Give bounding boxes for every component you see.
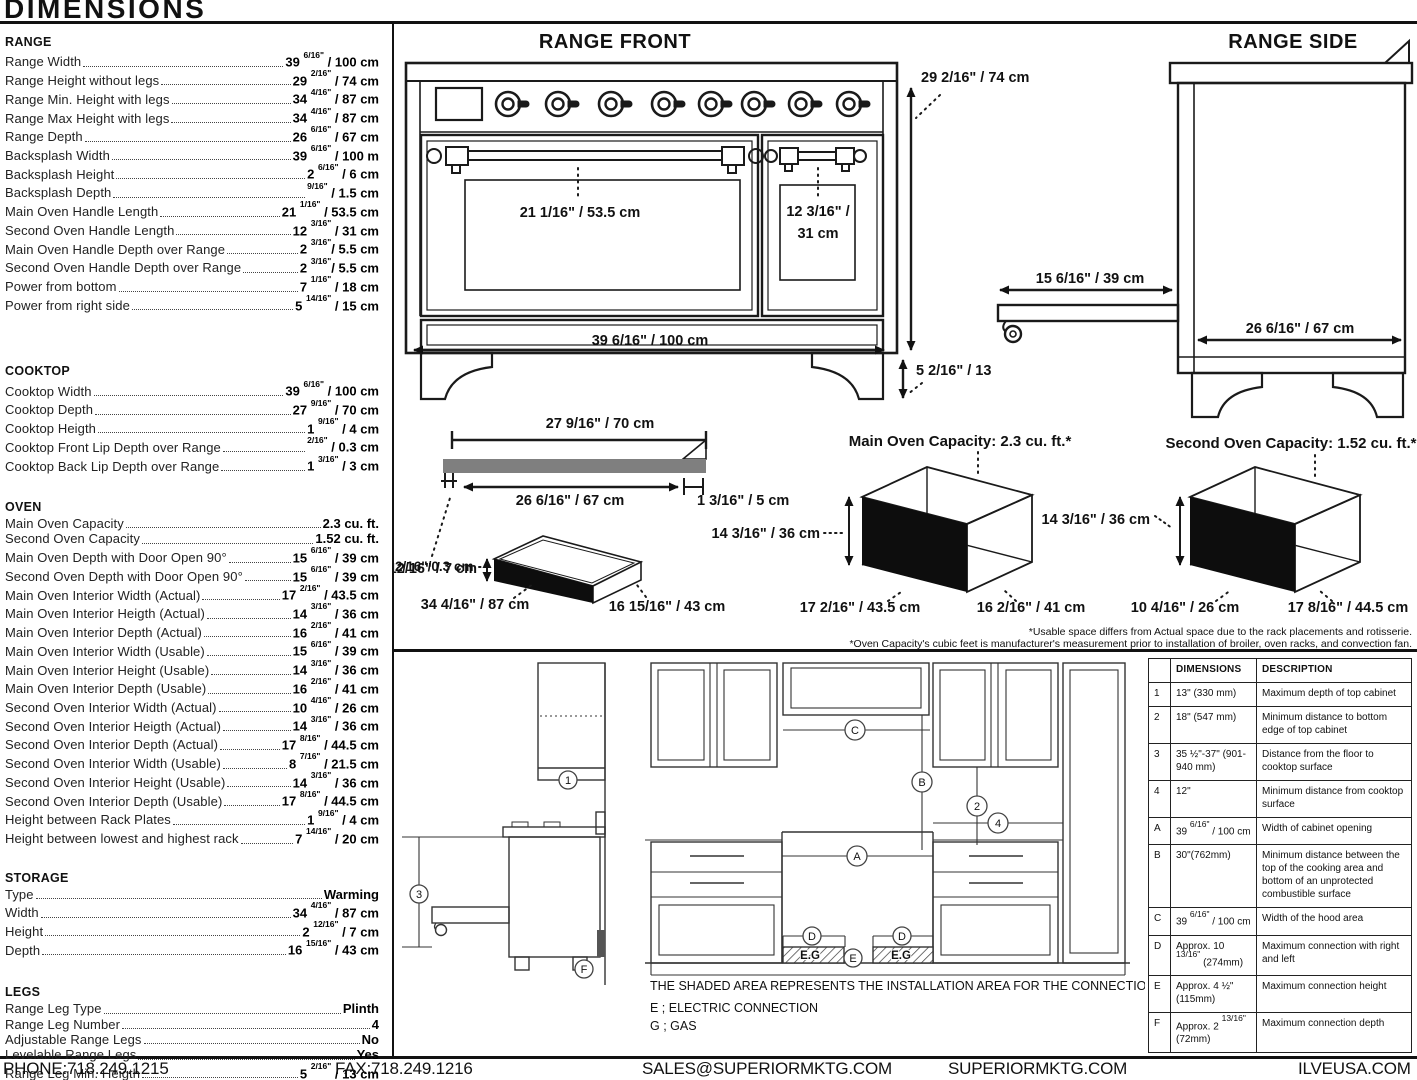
- table-cell-key: E: [1149, 975, 1171, 1012]
- side-right-leg: [1333, 373, 1403, 417]
- svg-text:D: D: [898, 931, 906, 943]
- cooktop-total-width-label: 27 9/16" / 70 cm: [546, 416, 654, 432]
- dotted-leader: [171, 122, 290, 123]
- spec-row: Range Min. Height with legs 34 4/16" / 8…: [5, 88, 379, 107]
- main-oven-height-label: 14 3/16" / 36 cm: [712, 526, 820, 542]
- storage-depth-label: 16 15/16" / 43 cm: [609, 599, 726, 615]
- footer-email: SALES@SUPERIORMKTG.COM: [642, 1059, 892, 1079]
- table-cell-dimension: Approx. 4 ½" (115mm): [1171, 975, 1257, 1012]
- dotted-leader: [202, 599, 279, 600]
- dotted-leader: [243, 272, 298, 273]
- storage-width-label: 34 4/16" / 87 cm: [421, 597, 529, 613]
- main-oven-width-label: 17 2/16" / 43.5 cm: [800, 600, 921, 616]
- dotted-leader: [160, 216, 279, 217]
- spec-row: Height between lowest and highest rack 7…: [5, 828, 379, 847]
- table-row: 1 13" (330 mm) Maximum depth of top cabi…: [1149, 683, 1412, 707]
- spec-value: 34 4/16" / 87 cm: [293, 107, 379, 126]
- second-oven-depth-label: 17 8/16" / 44.5 cm: [1288, 600, 1409, 616]
- marker-3: 3: [410, 885, 428, 903]
- dotted-leader: [176, 234, 290, 235]
- dotted-leader: [126, 527, 321, 528]
- spec-row: Power from right side 5 14/16" / 15 cm: [5, 295, 379, 314]
- spec-value: 39 6/16" / 100 cm: [285, 380, 379, 399]
- spec-label: Second Oven Interior Depth (Usable): [5, 794, 222, 809]
- spec-value: 12 3/16" / 31 cm: [293, 220, 379, 239]
- svg-text:F: F: [581, 964, 588, 976]
- marker-C: C: [845, 720, 865, 740]
- main-handle-length-label: 21 1/16" / 53.5 cm: [520, 205, 641, 221]
- spec-label: Backsplash Width: [5, 148, 110, 163]
- spec-row: Second Oven Interior Depth (Actual) 17 8…: [5, 734, 379, 753]
- section-title: LEGS: [5, 985, 379, 999]
- dotted-leader: [113, 197, 305, 198]
- dotted-leader: [211, 674, 290, 675]
- spec-label: Range Max Height with legs: [5, 111, 169, 126]
- dotted-leader: [112, 159, 291, 160]
- spec-value: 2.3 cu. ft.: [323, 516, 379, 531]
- spec-value: 8 7/16" / 21.5 cm: [289, 753, 379, 772]
- table-row: B 30"(762mm) Minimum distance between th…: [1149, 845, 1412, 908]
- spec-value: 4: [372, 1017, 379, 1032]
- spec-row: Second Oven Interior Heigth (Actual) 14 …: [5, 715, 379, 734]
- spec-row: Range Depth 26 6/16" / 67 cm: [5, 126, 379, 145]
- spec-label: Range Leg Number: [5, 1017, 120, 1032]
- spec-section-range: RANGE Range Width 39 6/16" / 100 cm Rang…: [5, 35, 379, 313]
- spec-label: Backsplash Height: [5, 167, 114, 182]
- spec-row: Main Oven Interior Depth (Usable) 16 2/1…: [5, 678, 379, 697]
- second-oven-height-label: 14 3/16" / 36 cm: [1042, 512, 1150, 528]
- spec-value: 5 14/16" / 15 cm: [295, 295, 379, 314]
- spec-label: Width: [5, 905, 39, 920]
- spec-row: Cooktop Width 39 6/16" / 100 cm: [5, 380, 379, 399]
- table-cell-key: D: [1149, 935, 1171, 975]
- spec-label: Main Oven Interior Depth (Usable): [5, 681, 206, 696]
- dotted-leader: [98, 432, 305, 433]
- table-cell-key: 2: [1149, 707, 1171, 744]
- spec-value: 27 9/16" / 70 cm: [293, 399, 379, 418]
- table-row: A 39 6/16" / 100 cm Width of cabinet ope…: [1149, 818, 1412, 845]
- dotted-leader: [245, 580, 291, 581]
- table-cell-dimension: Approx. 2 13/16" (72mm): [1171, 1012, 1257, 1052]
- spec-value: 7 14/16" / 20 cm: [295, 828, 379, 847]
- dotted-leader: [95, 414, 291, 415]
- spec-label: Depth: [5, 943, 40, 958]
- dotted-leader: [42, 954, 286, 955]
- spec-row: Main Oven Depth with Door Open 90° 15 6/…: [5, 547, 379, 566]
- dotted-leader: [104, 1013, 341, 1014]
- spec-label: Main Oven Handle Length: [5, 204, 158, 219]
- range-depth-label: 26 6/16" / 67 cm: [1246, 321, 1354, 337]
- spec-row: Depth 16 15/16" / 43 cm: [5, 939, 379, 958]
- dotted-leader: [132, 309, 293, 310]
- open-door-shelf: [998, 305, 1178, 321]
- spec-label: Height: [5, 924, 43, 939]
- table-cell-key: F: [1149, 1012, 1171, 1052]
- spec-label: Cooktop Width: [5, 384, 92, 399]
- footer-site: SUPERIORMKTG.COM: [948, 1059, 1127, 1079]
- spec-value: Plinth: [343, 1001, 379, 1016]
- svg-text:E: E: [849, 953, 856, 965]
- spec-section-cooktop: COOKTOP Cooktop Width 39 6/16" / 100 cm …: [5, 364, 379, 474]
- install-note-gas: G ; GAS: [650, 1019, 697, 1033]
- dotted-leader: [138, 1059, 354, 1060]
- table-row: E Approx. 4 ½" (115mm) Maximum connectio…: [1149, 975, 1412, 1012]
- svg-text:2: 2: [974, 801, 980, 813]
- main-oven-depth-label: 16 2/16" / 41 cm: [977, 600, 1085, 616]
- dotted-leader: [173, 824, 305, 825]
- section-title: RANGE: [5, 35, 379, 49]
- table-cell-dimension: 39 6/16" / 100 cm: [1171, 908, 1257, 935]
- section-title: STORAGE: [5, 871, 379, 885]
- main-oven-capacity-title: Main Oven Capacity: 2.3 cu. ft.*: [849, 433, 1072, 450]
- spec-label: Range Leg Type: [5, 1001, 102, 1016]
- spec-row: Power from bottom 7 1/16" / 18 cm: [5, 276, 379, 295]
- table-cell-dimension: 12": [1171, 781, 1257, 818]
- marker-1: 1: [559, 771, 577, 789]
- spec-label: Adjustable Range Legs: [5, 1032, 142, 1047]
- install-side-view: [402, 663, 605, 985]
- marker-A: A: [847, 846, 867, 866]
- table-header-key: [1149, 659, 1171, 683]
- spec-label: Range Height without legs: [5, 73, 159, 88]
- dotted-leader: [223, 730, 291, 731]
- spec-value: 2 12/16" / 7 cm: [302, 921, 379, 940]
- leg-height-label: 5 2/16" / 13: [916, 363, 991, 379]
- dotted-leader: [207, 618, 291, 619]
- spec-row: Cooktop Back Lip Depth over Range 1 3/16…: [5, 455, 379, 474]
- spec-label: Main Oven Interior Width (Actual): [5, 588, 200, 603]
- dotted-leader: [227, 786, 290, 787]
- installation-table: DIMENSIONS DESCRIPTION 1 13" (330 mm) Ma…: [1148, 658, 1412, 1053]
- spec-label: Main Oven Interior Depth (Actual): [5, 625, 202, 640]
- table-cell-description: Minimum distance from cooktop surface: [1257, 781, 1412, 818]
- spec-value: 1 3/16" / 3 cm: [307, 455, 379, 474]
- spec-value: 39 6/16" / 100 m: [293, 145, 379, 164]
- table-cell-dimension: 39 6/16" / 100 cm: [1171, 818, 1257, 845]
- svg-text:D: D: [808, 931, 816, 943]
- spec-label: Cooktop Back Lip Depth over Range: [5, 459, 219, 474]
- spec-row: Second Oven Interior Height (Usable) 14 …: [5, 772, 379, 791]
- spec-column: RANGE Range Width 39 6/16" / 100 cm Rang…: [0, 24, 392, 1080]
- dotted-leader: [142, 543, 313, 544]
- spec-row: Height 2 12/16" / 7 cm: [5, 921, 379, 940]
- section-title: COOKTOP: [5, 364, 379, 378]
- marker-D-right: D: [893, 927, 911, 945]
- spec-row: Width 34 4/16" / 87 cm: [5, 902, 379, 921]
- table-row: 4 12" Minimum distance from cooktop surf…: [1149, 781, 1412, 818]
- spec-row: Main Oven Interior Heigth (Actual) 14 3/…: [5, 603, 379, 622]
- spec-label: Second Oven Depth with Door Open 90°: [5, 569, 243, 584]
- dotted-leader: [224, 805, 279, 806]
- spec-value: 34 4/16" / 87 cm: [293, 88, 379, 107]
- spec-value: 16 2/16" / 41 cm: [293, 622, 379, 641]
- spec-section-oven: OVEN Main Oven Capacity 2.3 cu. ft. Seco…: [5, 500, 379, 847]
- spec-value: 2/16" / 0.3 cm: [307, 436, 379, 455]
- dotted-leader: [41, 917, 291, 918]
- spec-value: 14 3/16" / 36 cm: [293, 715, 379, 734]
- table-cell-dimension: 13" (330 mm): [1171, 683, 1257, 707]
- marker-4: 4: [988, 813, 1008, 833]
- dotted-leader: [219, 711, 291, 712]
- dotted-leader: [172, 103, 291, 104]
- dotted-leader: [207, 655, 291, 656]
- spec-row: Range Height without legs 29 2/16" / 74 …: [5, 70, 379, 89]
- spec-label: Second Oven Interior Heigth (Actual): [5, 719, 221, 734]
- dotted-leader: [45, 935, 300, 936]
- spec-row: Second Oven Interior Width (Usable) 8 7/…: [5, 753, 379, 772]
- spec-value: 21 1/16" / 53.5 cm: [282, 201, 379, 220]
- spec-row: Backsplash Height 2 6/16" / 6 cm: [5, 163, 379, 182]
- marker-F: F: [575, 960, 593, 978]
- spec-value: 1 9/16" / 4 cm: [307, 418, 379, 437]
- spec-row: Range Leg Type Plinth: [5, 1001, 379, 1016]
- spec-value: 14 3/16" / 36 cm: [293, 772, 379, 791]
- table-cell-dimension: 35 ½"-37" (901-940 mm): [1171, 744, 1257, 781]
- table-cell-key: B: [1149, 845, 1171, 908]
- table-cell-dimension: Approx. 10 13/16" (274mm): [1171, 935, 1257, 975]
- dotted-leader: [161, 84, 290, 85]
- marker-D-left: D: [803, 927, 821, 945]
- table-cell-key: C: [1149, 908, 1171, 935]
- table-cell-description: Maximum connection height: [1257, 975, 1412, 1012]
- table-row: 2 18" (547 mm) Minimum distance to botto…: [1149, 707, 1412, 744]
- dotted-leader: [85, 141, 291, 142]
- table-row: D Approx. 10 13/16" (274mm) Maximum conn…: [1149, 935, 1412, 975]
- dotted-leader: [223, 768, 287, 769]
- spec-value: 7 1/16" / 18 cm: [300, 276, 379, 295]
- second-oven-handle: [765, 148, 866, 171]
- main-oven-window: [465, 180, 740, 290]
- control-display: [436, 88, 482, 120]
- spec-label: Power from right side: [5, 298, 130, 313]
- second-handle-length-label2: 31 cm: [797, 226, 838, 242]
- dotted-leader: [122, 1028, 370, 1029]
- table-row: C 39 6/16" / 100 cm Width of the hood ar…: [1149, 908, 1412, 935]
- spec-value: 16 2/16" / 41 cm: [293, 678, 379, 697]
- spec-label: Height between lowest and highest rack: [5, 831, 239, 846]
- svg-text:A: A: [853, 851, 861, 863]
- footer-phone: PHONE:718.249.1215: [3, 1059, 169, 1079]
- svg-text:4: 4: [995, 818, 1001, 830]
- spec-value: 2 6/16" / 6 cm: [307, 163, 379, 182]
- footnote-oven-capacity: *Oven Capacity's cubic feet is manufactu…: [849, 638, 1412, 650]
- dotted-leader: [116, 178, 305, 179]
- door-open-depth-label: 15 6/16" / 39 cm: [1036, 271, 1144, 287]
- spec-label: Main Oven Handle Depth over Range: [5, 242, 225, 257]
- table-cell-dimension: 18" (547 mm): [1171, 707, 1257, 744]
- spec-label: Main Oven Interior Height (Usable): [5, 663, 209, 678]
- installation-diagram: 1 3 F: [392, 652, 1145, 1056]
- spec-value: 39 6/16" / 100 cm: [285, 51, 379, 70]
- connection-shaded-area: [597, 930, 605, 957]
- side-left-leg: [1192, 373, 1262, 417]
- spec-row: Second Oven Handle Depth over Range 2 3/…: [5, 257, 379, 276]
- spec-row: Backsplash Depth 9/16" / 1.5 cm: [5, 182, 379, 201]
- spec-value: 34 4/16" / 87 cm: [293, 902, 379, 921]
- table-header-description: DESCRIPTION: [1257, 659, 1412, 683]
- spec-row: Backsplash Width 39 6/16" / 100 m: [5, 145, 379, 164]
- spec-row: Cooktop Depth 27 9/16" / 70 cm: [5, 399, 379, 418]
- range-front-height-label: 29 2/16" / 74 cm: [921, 70, 1029, 86]
- main-oven-handle: [427, 147, 763, 173]
- spec-row: Range Leg Number 4: [5, 1017, 379, 1032]
- spec-row: Main Oven Capacity 2.3 cu. ft.: [5, 516, 379, 531]
- spec-label: Main Oven Capacity: [5, 516, 124, 531]
- svg-text:C: C: [851, 725, 859, 737]
- spec-label: Main Oven Depth with Door Open 90°: [5, 550, 227, 565]
- dotted-leader: [204, 636, 291, 637]
- dotted-leader: [94, 395, 284, 396]
- spec-label: Main Oven Interior Width (Usable): [5, 644, 205, 659]
- marker-2: 2: [967, 796, 987, 816]
- spec-label: Second Oven Interior Width (Actual): [5, 700, 217, 715]
- spec-value: No: [362, 1032, 379, 1047]
- spec-value: 26 6/16" / 67 cm: [293, 126, 379, 145]
- table-cell-key: 4: [1149, 781, 1171, 818]
- dotted-leader: [221, 470, 305, 471]
- spec-label: Height between Rack Plates: [5, 812, 171, 827]
- spec-label: Type: [5, 887, 34, 902]
- table-cell-key: A: [1149, 818, 1171, 845]
- dotted-leader: [119, 291, 298, 292]
- spec-value: 15 6/16" / 39 cm: [293, 640, 379, 659]
- cooktop-back-lip-label: 1 3/16" / 5 cm: [697, 493, 789, 509]
- spec-label: Main Oven Interior Heigth (Actual): [5, 606, 205, 621]
- spec-value: Warming: [324, 887, 379, 902]
- table-cell-description: Width of the hood area: [1257, 908, 1412, 935]
- spec-label: Cooktop Heigth: [5, 421, 96, 436]
- install-note-electric: E ; ELECTRIC CONNECTION: [650, 1001, 818, 1015]
- spec-label: Second Oven Handle Length: [5, 223, 174, 238]
- dotted-leader: [241, 843, 294, 844]
- marker-B: B: [912, 772, 932, 792]
- spec-value: 17 8/16" / 44.5 cm: [282, 790, 379, 809]
- table-cell-description: Minimum distance between the top of the …: [1257, 845, 1412, 908]
- table-cell-dimension: 30"(762mm): [1171, 845, 1257, 908]
- spec-row: Second Oven Handle Length 12 3/16" / 31 …: [5, 220, 379, 239]
- spec-label: Cooktop Front Lip Depth over Range: [5, 440, 221, 455]
- spec-label: Second Oven Interior Depth (Actual): [5, 737, 218, 752]
- spec-value: 2 3/16"/ 5.5 cm: [300, 238, 379, 257]
- table-cell-description: Width of cabinet opening: [1257, 818, 1412, 845]
- spec-row: Second Oven Interior Width (Actual) 10 4…: [5, 697, 379, 716]
- spec-row: Adjustable Range Legs No: [5, 1032, 379, 1047]
- footnote-usable-space: *Usable space differs from Actual space …: [1029, 626, 1412, 638]
- spec-row: Height between Rack Plates 1 9/16" / 4 c…: [5, 809, 379, 828]
- table-row: 3 35 ½"-37" (901-940 mm) Distance from t…: [1149, 744, 1412, 781]
- dotted-leader: [36, 898, 322, 899]
- footer-fax: FAX:718.249.1216: [335, 1059, 473, 1079]
- spec-label: Backsplash Depth: [5, 185, 111, 200]
- table-cell-key: 1: [1149, 683, 1171, 707]
- footer-brand: ILVEUSA.COM: [1298, 1059, 1411, 1079]
- table-cell-description: Maximum connection depth: [1257, 1012, 1412, 1052]
- marker-E: E: [844, 949, 862, 967]
- range-side-title: RANGE SIDE: [1228, 31, 1357, 53]
- spec-row: Main Oven Interior Width (Usable) 15 6/1…: [5, 640, 379, 659]
- install-elevation-view: [645, 663, 1130, 975]
- dotted-leader: [220, 749, 280, 750]
- svg-text:3: 3: [416, 889, 422, 901]
- spec-row: Range Width 39 6/16" / 100 cm: [5, 51, 379, 70]
- spec-sheet: DIMENSIONS RANGE Range Width 39 6/16" / …: [0, 0, 1417, 1080]
- svg-text:B: B: [918, 777, 925, 789]
- spec-row: Second Oven Depth with Door Open 90° 15 …: [5, 566, 379, 585]
- spec-label: Second Oven Capacity: [5, 531, 140, 546]
- spec-value: 15 6/16" / 39 cm: [293, 547, 379, 566]
- spec-value: 14 3/16" / 36 cm: [293, 659, 379, 678]
- dotted-leader: [227, 253, 298, 254]
- main-oven-capacity-drawing: [824, 452, 1032, 601]
- spec-value: 1 9/16" / 4 cm: [307, 809, 379, 828]
- eg-label-right: E.G: [891, 950, 911, 962]
- storage-drawer-drawing: [479, 536, 646, 603]
- install-note-shaded: THE SHADED AREA REPRESENTS THE INSTALLAT…: [650, 979, 1145, 993]
- range-front-title: RANGE FRONT: [539, 31, 691, 53]
- storage-height-label: 2 12/16" / 7 cm: [392, 561, 477, 577]
- spec-label: Second Oven Handle Depth over Range: [5, 260, 241, 275]
- spec-value: 17 8/16" / 44.5 cm: [282, 734, 379, 753]
- spec-label: Range Min. Height with legs: [5, 92, 170, 107]
- eg-label-left: E.G: [800, 950, 820, 962]
- top-diagrams: RANGE FRONT RANGE SIDE: [392, 22, 1417, 650]
- spec-row: Main Oven Handle Length 21 1/16" / 53.5 …: [5, 201, 379, 220]
- spec-label: Cooktop Depth: [5, 402, 93, 417]
- dotted-leader: [229, 562, 291, 563]
- table-header-dimensions: DIMENSIONS: [1171, 659, 1257, 683]
- table-cell-key: 3: [1149, 744, 1171, 781]
- front-left-leg: [421, 353, 492, 399]
- spec-label: Second Oven Interior Height (Usable): [5, 775, 225, 790]
- dotted-leader: [144, 1043, 360, 1044]
- spec-label: Range Width: [5, 54, 81, 69]
- dotted-leader: [208, 693, 290, 694]
- spec-value: 16 15/16" / 43 cm: [288, 939, 379, 958]
- table-cell-description: Distance from the floor to cooktop surfa…: [1257, 744, 1412, 781]
- table-cell-description: Maximum connection with right and left: [1257, 935, 1412, 975]
- range-front-width-label: 39 6/16" / 100 cm: [592, 333, 709, 349]
- spec-row: Main Oven Handle Depth over Range 2 3/16…: [5, 238, 379, 257]
- second-oven-capacity-title: Second Oven Capacity: 1.52 cu. ft.*: [1166, 435, 1417, 452]
- range-side-drawing: [998, 41, 1412, 417]
- spec-row: Second Oven Interior Depth (Usable) 17 8…: [5, 790, 379, 809]
- spec-value: 2 3/16"/ 5.5 cm: [300, 257, 379, 276]
- spec-value: 14 3/16" / 36 cm: [293, 603, 379, 622]
- table-cell-description: Maximum depth of top cabinet: [1257, 683, 1412, 707]
- second-oven-capacity-drawing: [1155, 455, 1360, 601]
- spec-section-storage: STORAGE Type Warming Width 34 4/16" / 87…: [5, 871, 379, 959]
- spec-value: 15 6/16" / 39 cm: [293, 566, 379, 585]
- table-row: F Approx. 2 13/16" (72mm) Maximum connec…: [1149, 1012, 1412, 1052]
- dotted-leader: [223, 451, 305, 452]
- cooktop-bar: [443, 459, 706, 473]
- table-cell-description: Minimum distance to bottom edge of top c…: [1257, 707, 1412, 744]
- spec-label: Range Depth: [5, 129, 83, 144]
- front-right-leg: [812, 353, 883, 399]
- spec-label: Second Oven Interior Width (Usable): [5, 756, 221, 771]
- spec-row: Cooktop Front Lip Depth over Range 2/16"…: [5, 436, 379, 455]
- spec-value: 10 4/16" / 26 cm: [293, 697, 379, 716]
- dotted-leader: [83, 66, 283, 67]
- svg-text:1: 1: [565, 775, 571, 787]
- spec-value: 29 2/16" / 74 cm: [293, 70, 379, 89]
- spec-row: Main Oven Interior Depth (Actual) 16 2/1…: [5, 622, 379, 641]
- cooktop-inner-width-label: 26 6/16" / 67 cm: [516, 493, 624, 509]
- second-handle-length-label1: 12 3/16" /: [786, 204, 849, 220]
- spec-row: Cooktop Heigth 1 9/16" / 4 cm: [5, 418, 379, 437]
- section-title: OVEN: [5, 500, 379, 514]
- spec-label: Power from bottom: [5, 279, 117, 294]
